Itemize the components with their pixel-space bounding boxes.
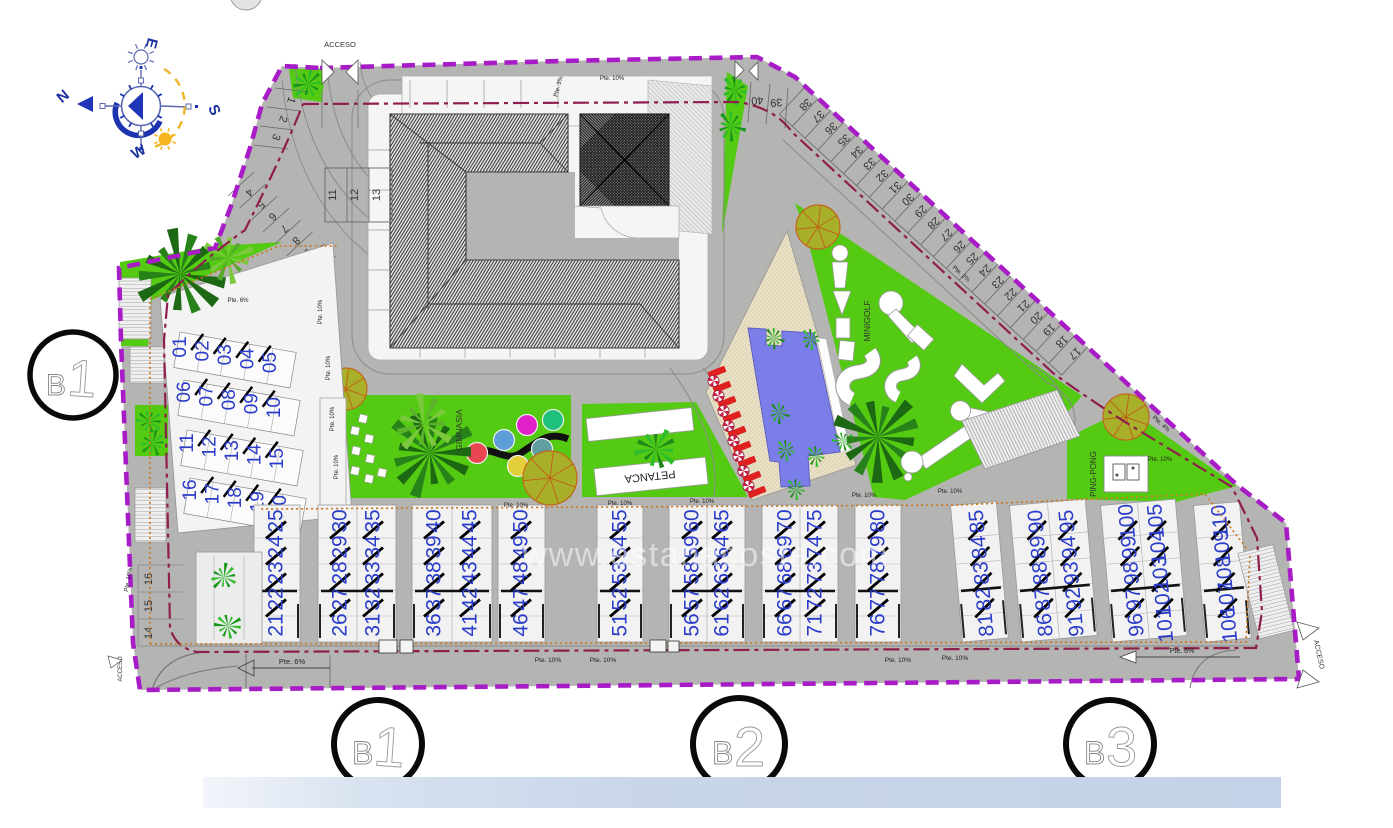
svg-text:Pte. 10%: Pte. 10% xyxy=(852,493,877,499)
svg-text:1: 1 xyxy=(66,349,99,409)
svg-text:28: 28 xyxy=(329,561,352,584)
svg-text:Pte. 10%: Pte. 10% xyxy=(535,657,562,664)
svg-text:03: 03 xyxy=(215,344,236,365)
svg-text:3: 3 xyxy=(1106,715,1137,778)
svg-text:105: 105 xyxy=(1143,503,1169,540)
svg-text:46: 46 xyxy=(510,613,533,636)
svg-text:11: 11 xyxy=(327,189,339,200)
svg-text:40: 40 xyxy=(423,509,446,532)
svg-text:B: B xyxy=(46,369,66,402)
svg-text:ACCESO: ACCESO xyxy=(324,40,356,49)
svg-text:21: 21 xyxy=(265,613,288,636)
svg-text:35: 35 xyxy=(362,509,385,532)
svg-text:Pte. 10%: Pte. 10% xyxy=(938,489,963,495)
svg-text:66: 66 xyxy=(774,613,797,636)
svg-text:Pte. 10%: Pte. 10% xyxy=(608,501,633,507)
svg-text:13: 13 xyxy=(222,440,243,461)
svg-text:16: 16 xyxy=(180,479,201,500)
svg-text:32: 32 xyxy=(362,587,385,610)
svg-text:33: 33 xyxy=(362,561,385,584)
svg-text:GIMNASIA: GIMNASIA xyxy=(454,409,464,451)
svg-text:12: 12 xyxy=(349,189,361,201)
svg-text:Pte. 6%: Pte. 6% xyxy=(279,657,306,666)
svg-text:50: 50 xyxy=(510,509,533,532)
svg-text:25: 25 xyxy=(265,509,288,532)
svg-text:B: B xyxy=(1084,735,1105,771)
svg-text:42: 42 xyxy=(459,587,482,610)
svg-text:24: 24 xyxy=(265,535,288,559)
svg-text:60: 60 xyxy=(681,509,704,532)
svg-text:04: 04 xyxy=(238,348,259,370)
svg-text:44: 44 xyxy=(459,535,482,559)
svg-text:MINIGOLF: MINIGOLF xyxy=(862,300,872,341)
svg-text:09: 09 xyxy=(242,393,263,414)
svg-text:39: 39 xyxy=(770,95,783,108)
svg-text:90: 90 xyxy=(1024,509,1049,534)
svg-text:Pte. 10%: Pte. 10% xyxy=(942,655,969,662)
svg-text:52: 52 xyxy=(609,587,632,610)
svg-text:17: 17 xyxy=(203,483,224,504)
svg-text:Pte. 10%: Pte. 10% xyxy=(326,355,332,380)
svg-text:56: 56 xyxy=(681,613,704,636)
svg-text:1: 1 xyxy=(372,714,407,779)
svg-text:01: 01 xyxy=(170,336,191,357)
svg-text:B: B xyxy=(352,735,373,771)
svg-text:12: 12 xyxy=(200,436,221,457)
svg-text:27: 27 xyxy=(329,587,352,610)
svg-text:B: B xyxy=(712,735,733,771)
svg-text:02: 02 xyxy=(193,340,214,361)
svg-text:110: 110 xyxy=(1207,504,1233,539)
svg-text:13: 13 xyxy=(371,189,383,201)
svg-text:72: 72 xyxy=(804,587,827,610)
svg-text:07: 07 xyxy=(197,385,218,406)
svg-text:29: 29 xyxy=(329,535,352,558)
svg-text:61: 61 xyxy=(711,613,734,636)
svg-text:57: 57 xyxy=(681,587,704,610)
svg-text:16: 16 xyxy=(143,573,155,585)
svg-text:15: 15 xyxy=(267,448,288,469)
svg-text:26: 26 xyxy=(329,613,352,636)
svg-text:37: 37 xyxy=(423,587,446,610)
svg-text:14: 14 xyxy=(143,627,155,639)
svg-text:14: 14 xyxy=(245,444,266,466)
svg-text:23: 23 xyxy=(265,561,288,584)
svg-text:Pte. 10%: Pte. 10% xyxy=(590,657,617,664)
svg-text:22: 22 xyxy=(265,587,288,610)
svg-text:85: 85 xyxy=(965,509,990,534)
svg-text:80: 80 xyxy=(867,509,890,532)
svg-text:11: 11 xyxy=(177,433,198,453)
svg-text:Pte. 10%: Pte. 10% xyxy=(885,657,912,664)
svg-text:Pte. 10%: Pte. 10% xyxy=(600,76,625,82)
svg-text:Pte. 6%: Pte. 6% xyxy=(227,298,249,304)
svg-text:15: 15 xyxy=(143,600,155,612)
svg-text:67: 67 xyxy=(774,587,797,610)
svg-text:70: 70 xyxy=(774,509,797,532)
svg-text:34: 34 xyxy=(362,535,385,559)
svg-text:06: 06 xyxy=(174,381,195,402)
svg-text:10: 10 xyxy=(264,397,285,418)
svg-text:18: 18 xyxy=(225,487,246,508)
svg-text:62: 62 xyxy=(711,587,734,610)
svg-text:75: 75 xyxy=(804,509,827,532)
svg-text:43: 43 xyxy=(459,561,482,584)
svg-text:31: 31 xyxy=(362,613,385,636)
svg-text:55: 55 xyxy=(609,509,632,532)
svg-text:Pte. 10%: Pte. 10% xyxy=(330,406,336,431)
svg-text:45: 45 xyxy=(459,509,482,532)
svg-text:100: 100 xyxy=(1114,503,1140,540)
svg-text:Pte. 10%: Pte. 10% xyxy=(504,503,529,509)
svg-text:30: 30 xyxy=(329,509,352,532)
svg-text:2: 2 xyxy=(734,715,765,778)
svg-text:Pte. 10%: Pte. 10% xyxy=(690,499,715,505)
svg-text:51: 51 xyxy=(609,613,632,636)
svg-text:www.estanacosta.com: www.estanacosta.com xyxy=(522,536,890,574)
svg-text:Pte. 10%: Pte. 10% xyxy=(318,299,324,324)
svg-text:PING-PONG: PING-PONG xyxy=(1089,451,1098,497)
svg-text:05: 05 xyxy=(260,352,281,373)
svg-text:Pte. 10%: Pte. 10% xyxy=(334,454,340,479)
svg-text:65: 65 xyxy=(711,509,734,532)
svg-text:36: 36 xyxy=(423,613,446,636)
svg-text:71: 71 xyxy=(804,613,827,636)
svg-text:47: 47 xyxy=(510,587,533,610)
svg-text:40: 40 xyxy=(751,93,764,106)
svg-text:Pte. 6%: Pte. 6% xyxy=(1170,648,1195,655)
svg-text:39: 39 xyxy=(423,535,446,558)
svg-text:08: 08 xyxy=(219,389,240,410)
svg-text:76: 76 xyxy=(867,613,890,636)
svg-text:41: 41 xyxy=(459,613,482,636)
svg-text:77: 77 xyxy=(867,587,890,610)
svg-text:38: 38 xyxy=(423,561,446,584)
svg-text:95: 95 xyxy=(1055,509,1080,534)
svg-text:Pte. 10%: Pte. 10% xyxy=(1148,457,1173,463)
